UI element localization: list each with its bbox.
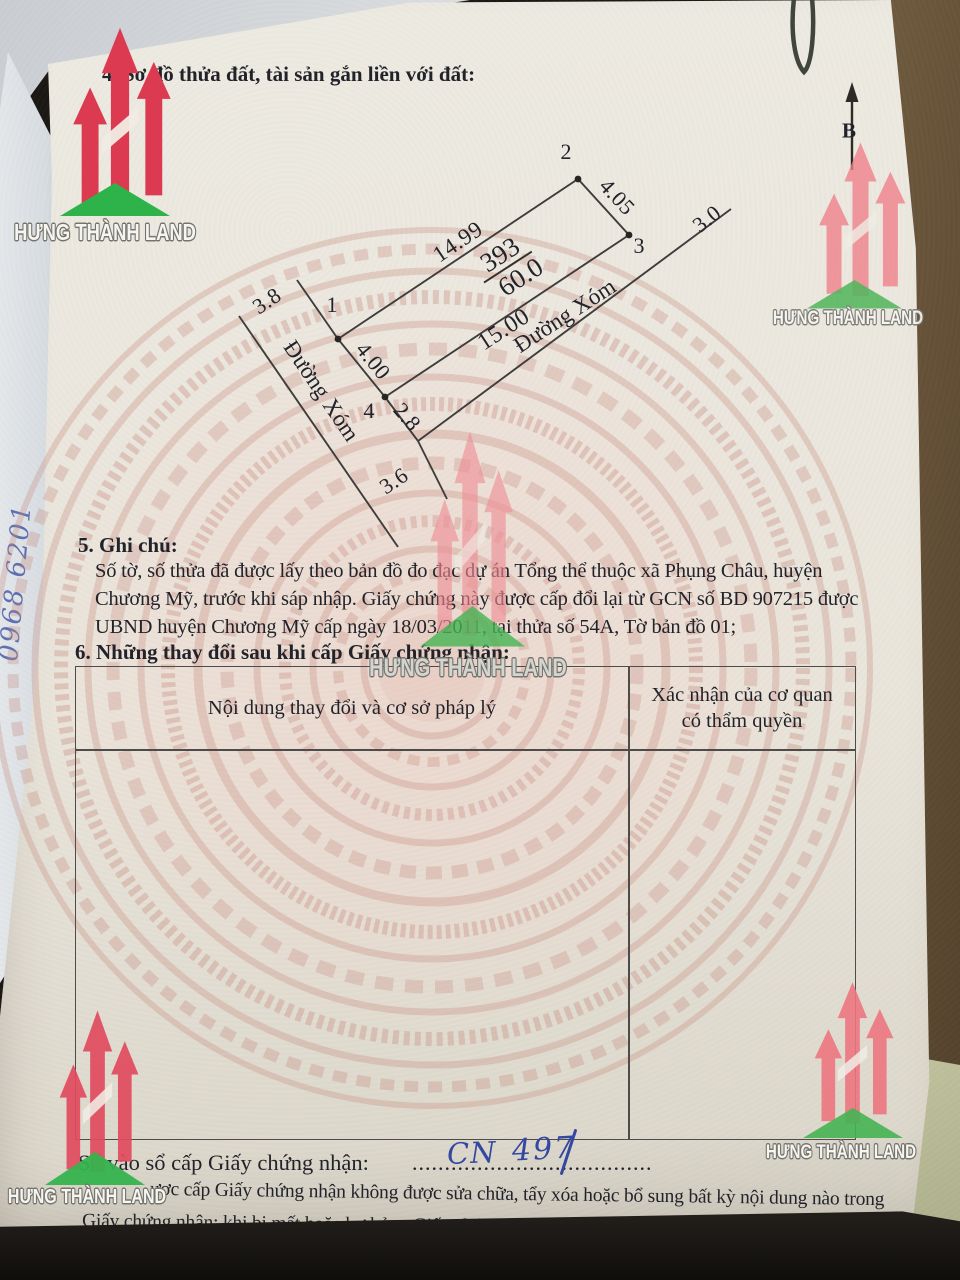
- vertex-label-4: 4: [364, 398, 375, 424]
- brand-name: HƯNG THÀNH LAND: [14, 219, 196, 246]
- brand-arrows-icon: [15, 1008, 160, 1188]
- table-col2-header-line1: Xác nhận của cơ quan: [651, 682, 833, 708]
- vertex-label-3: 3: [634, 233, 645, 259]
- table-col2-header-line2: có thẩm quyền: [682, 708, 803, 734]
- table-col2-header: Xác nhận của cơ quan có thẩm quyền: [629, 667, 855, 749]
- brand-arrows-icon: [775, 980, 910, 1145]
- hanging-wire: [780, 0, 840, 95]
- brand-arrows-icon: [20, 25, 190, 225]
- changes-table: Nội dung thay đổi và cơ sở pháp lý Xác n…: [75, 666, 856, 1140]
- brand-logo-bottomright: HƯNG THÀNH LAND: [775, 980, 910, 1145]
- vertex-label-2: 2: [561, 139, 572, 165]
- serial-handwritten-code: CN: [446, 1135, 497, 1171]
- brand-name: HƯNG THÀNH LAND: [766, 1142, 916, 1164]
- table-header-divider: [76, 749, 855, 751]
- brand-name: HƯNG THÀNH LAND: [773, 308, 923, 330]
- brand-name: HƯNG THÀNH LAND: [369, 654, 567, 683]
- vertex-label-1: 1: [327, 292, 338, 318]
- brand-arrows-icon: [775, 140, 925, 315]
- brand-logo-center: HƯNG THÀNH LAND: [405, 428, 535, 658]
- brand-logo-right: HƯNG THÀNH LAND: [775, 140, 925, 315]
- brand-arrows-icon: [405, 428, 535, 658]
- brand-name: HƯNG THÀNH LAND: [8, 1186, 166, 1209]
- section5-title: 5. Ghi chú:: [78, 533, 178, 558]
- brand-logo-bottomleft: HƯNG THÀNH LAND: [15, 1008, 160, 1188]
- brand-logo-topleft: HƯNG THÀNH LAND: [20, 25, 190, 225]
